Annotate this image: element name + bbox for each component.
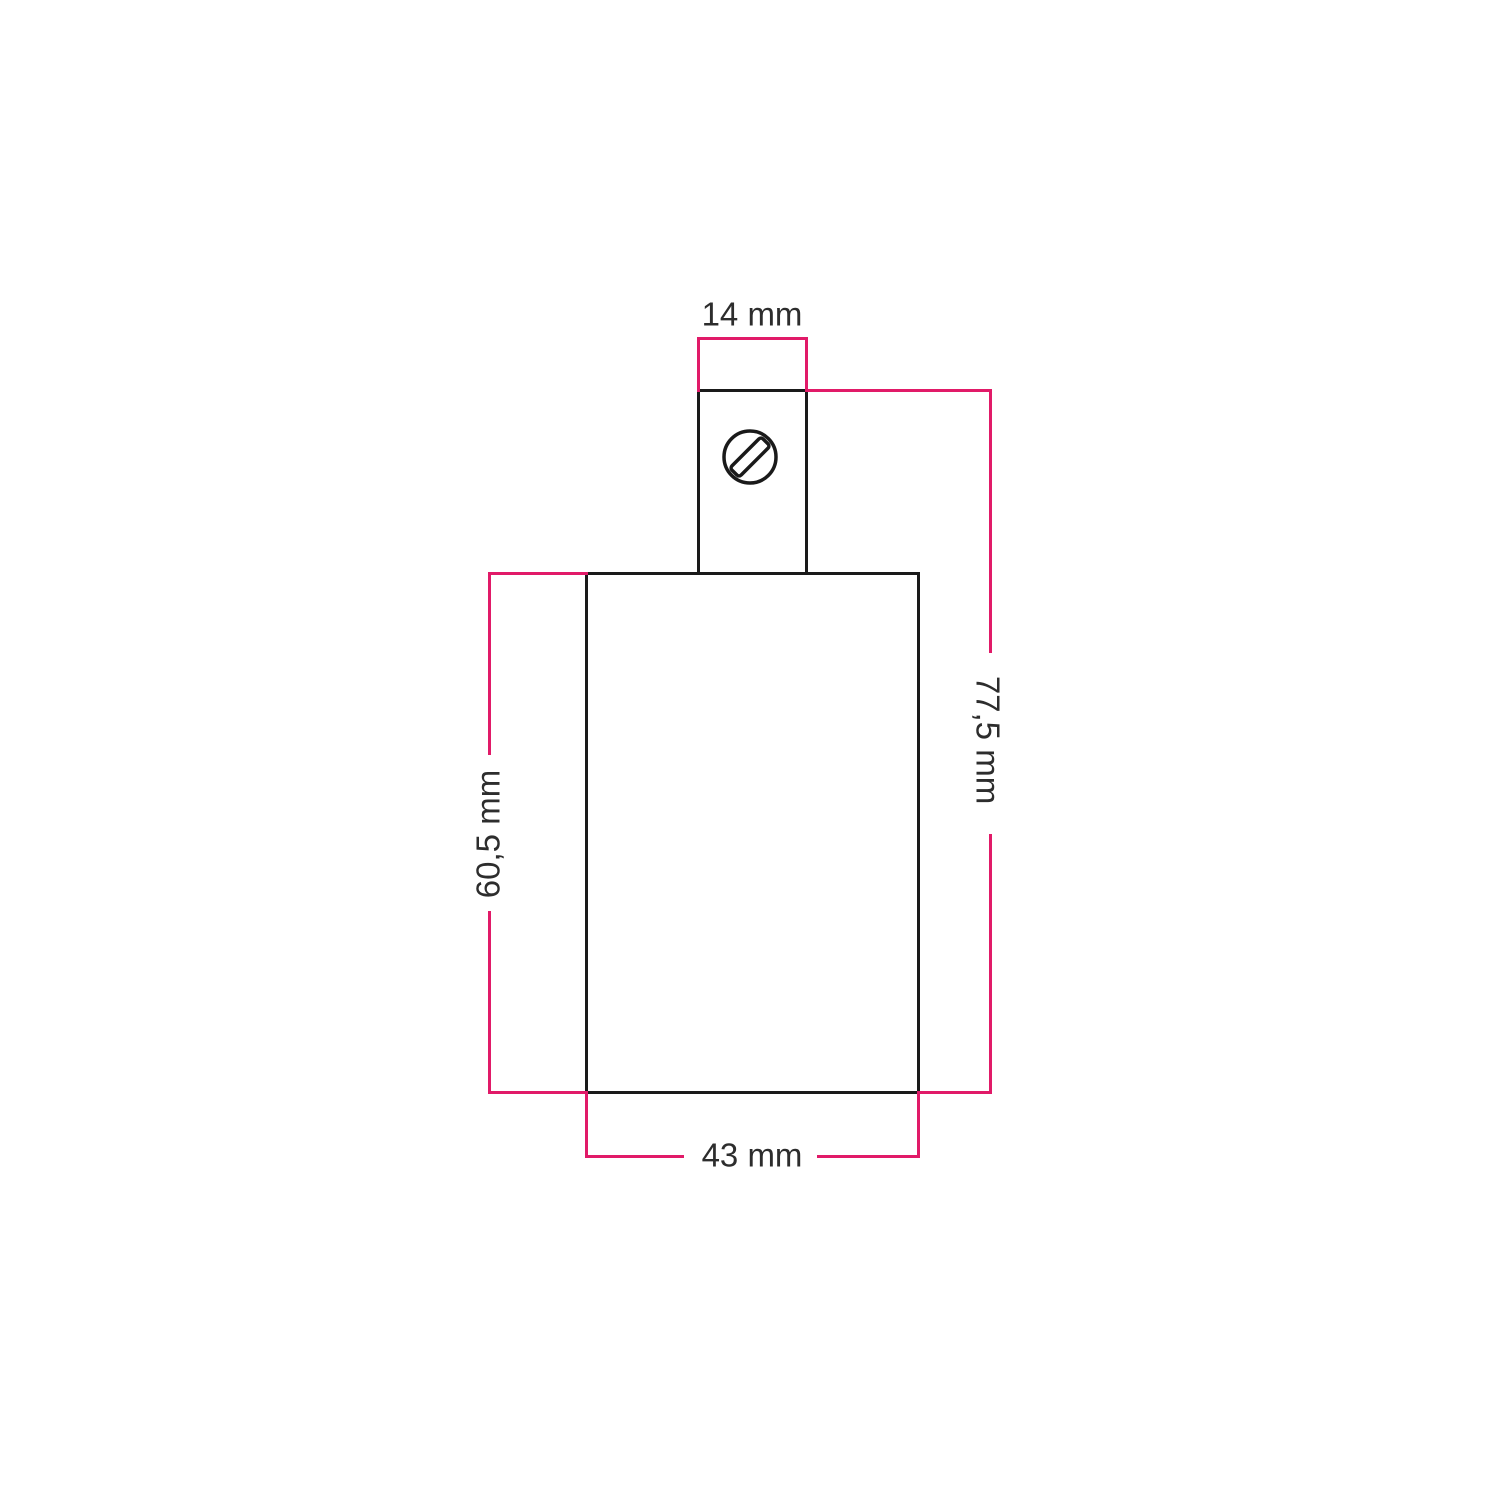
lamp-holder-body-outline (585, 572, 920, 1094)
dim-14mm-right-extension (805, 337, 808, 392)
dim-605mm-line-lower (488, 911, 491, 1094)
dim-775mm-line-lower (989, 834, 992, 1094)
dim-14mm-top-line (697, 337, 808, 340)
dim-775mm-top-extension (805, 389, 992, 392)
dim-43mm-right-extension (917, 1091, 920, 1158)
dim-605mm-top-extension (488, 572, 588, 575)
dim-775mm-bottom-extension (917, 1091, 992, 1094)
dim-43mm-bottom-line-left (585, 1155, 684, 1158)
dim-43mm-left-extension (585, 1091, 588, 1158)
dim-775mm-line-upper (989, 389, 992, 653)
dim-label-body-height: 60,5 mm (472, 770, 505, 898)
dim-605mm-line-upper (488, 572, 491, 755)
dim-label-body-width: 43 mm (702, 1139, 803, 1172)
dimension-diagram: 14 mm 77,5 mm 60,5 mm 43 mm (0, 0, 1500, 1500)
dim-14mm-left-extension (697, 337, 700, 392)
dim-43mm-bottom-line-right (817, 1155, 920, 1158)
dim-605mm-bottom-extension (488, 1091, 588, 1094)
dim-label-top-width: 14 mm (702, 298, 803, 331)
slotted-screw-icon (718, 425, 782, 489)
dim-label-total-height: 77,5 mm (972, 676, 1005, 804)
